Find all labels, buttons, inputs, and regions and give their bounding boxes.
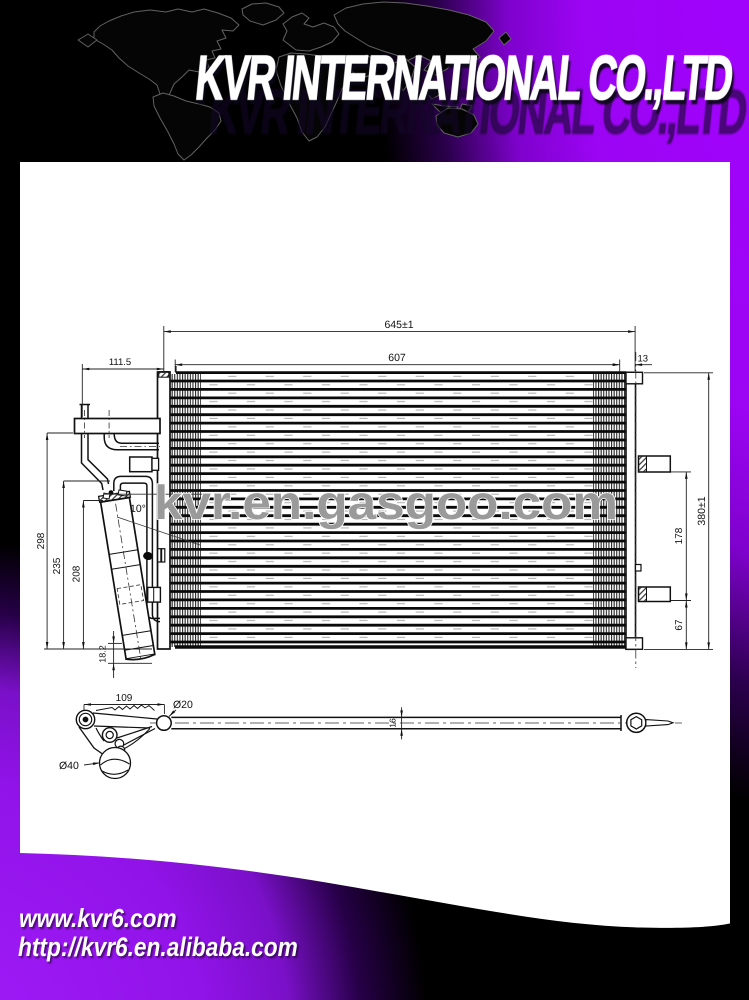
svg-text:kvr.en.gasgoo.com: kvr.en.gasgoo.com (154, 477, 618, 530)
